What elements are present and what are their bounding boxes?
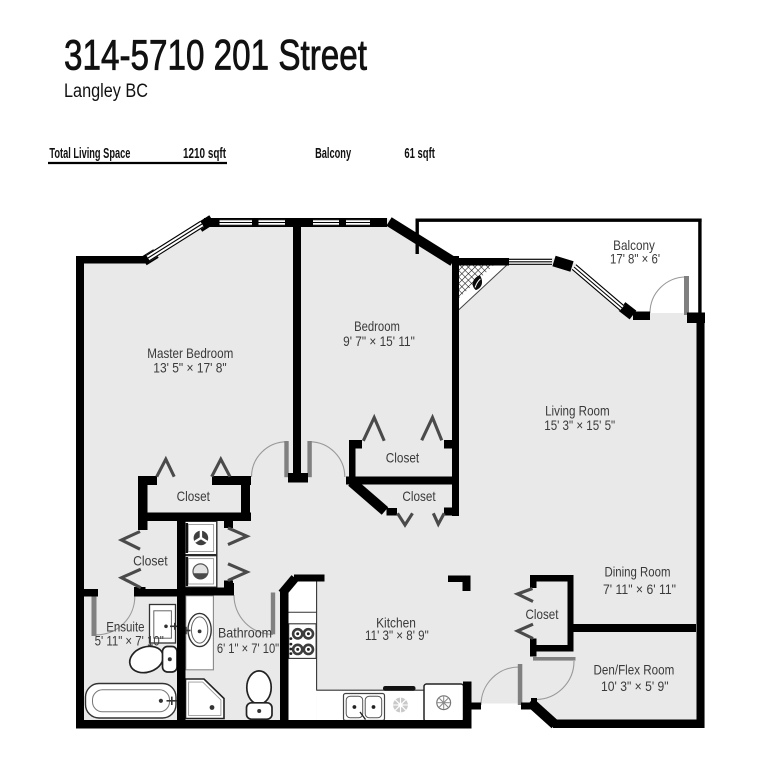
svg-text:17' 8" × 6': 17' 8" × 6' bbox=[610, 250, 660, 266]
svg-text:Closet: Closet bbox=[526, 606, 559, 622]
svg-text:Dining Room: Dining Room bbox=[605, 564, 671, 580]
svg-text:61 sqft: 61 sqft bbox=[404, 146, 435, 162]
svg-text:Closet: Closet bbox=[386, 450, 419, 466]
svg-text:15' 3" × 15' 5": 15' 3" × 15' 5" bbox=[544, 417, 615, 433]
svg-text:Den/Flex Room: Den/Flex Room bbox=[594, 662, 675, 678]
svg-text:Balcony: Balcony bbox=[315, 146, 351, 162]
svg-text:Closet: Closet bbox=[133, 553, 168, 569]
svg-text:10' 3" × 5' 9": 10' 3" × 5' 9" bbox=[601, 678, 669, 694]
svg-text:11' 3" × 8' 9": 11' 3" × 8' 9" bbox=[365, 627, 429, 643]
svg-text:6' 1" × 7' 10": 6' 1" × 7' 10" bbox=[217, 640, 279, 656]
svg-text:Closet: Closet bbox=[177, 488, 210, 504]
svg-text:Langley BC: Langley BC bbox=[64, 81, 148, 102]
svg-text:7' 11" × 6' 11": 7' 11" × 6' 11" bbox=[603, 581, 676, 597]
svg-text:1210 sqft: 1210 sqft bbox=[183, 146, 226, 162]
svg-text:Bedroom: Bedroom bbox=[354, 318, 400, 334]
svg-text:Closet: Closet bbox=[402, 488, 435, 504]
svg-text:Bathroom: Bathroom bbox=[218, 625, 272, 641]
svg-text:5' 11" × 7' 10": 5' 11" × 7' 10" bbox=[95, 632, 164, 648]
svg-text:9' 7" × 15' 11": 9' 7" × 15' 11" bbox=[343, 333, 415, 349]
svg-text:Total Living Space: Total Living Space bbox=[49, 146, 130, 162]
svg-text:314-5710 201 Street: 314-5710 201 Street bbox=[64, 33, 367, 80]
svg-text:13' 5" × 17' 8": 13' 5" × 17' 8" bbox=[153, 360, 226, 376]
